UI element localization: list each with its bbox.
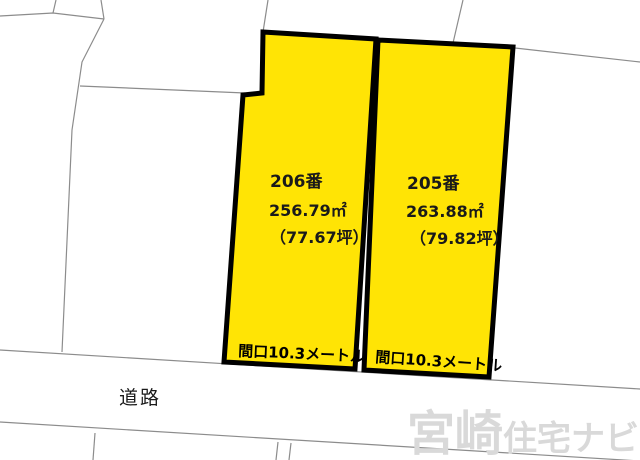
plot-205-number: 205番 bbox=[407, 174, 460, 194]
plot-205-area-tsubo: （79.82坪） bbox=[410, 229, 509, 248]
parcel-line-topleft-horizontal bbox=[0, 13, 104, 19]
parcel-line-top-vertical bbox=[101, 0, 104, 19]
plot-map-svg: 206番 256.79㎡ （77.67坪） 間口10.3メートル 205番 26… bbox=[0, 0, 640, 460]
plot-206-number: 206番 bbox=[270, 172, 323, 192]
plot-205-area-sqm: 263.88㎡ bbox=[406, 202, 484, 221]
parcel-line-middle-horizontal bbox=[80, 86, 245, 93]
parcel-line-above-plot-205 bbox=[453, 0, 463, 43]
road-label: 道路 bbox=[119, 387, 161, 409]
parcel-line-left-diagonal bbox=[62, 19, 104, 352]
road-bottom-line bbox=[0, 422, 640, 460]
parcel-line-topleft-vertical bbox=[53, 0, 56, 13]
parcel-line-right-of-plots bbox=[515, 48, 640, 62]
plot-206-area-sqm: 256.79㎡ bbox=[269, 201, 347, 220]
parcel-line-below-road-2 bbox=[276, 442, 278, 460]
parcel-line-above-plot-206 bbox=[263, 0, 268, 32]
plot-206-area-tsubo: （77.67坪） bbox=[270, 228, 369, 247]
land-plot-map: 206番 256.79㎡ （77.67坪） 間口10.3メートル 205番 26… bbox=[0, 0, 640, 460]
parcel-line-below-road-3 bbox=[289, 443, 291, 460]
parcel-line-below-road-1 bbox=[93, 433, 95, 460]
